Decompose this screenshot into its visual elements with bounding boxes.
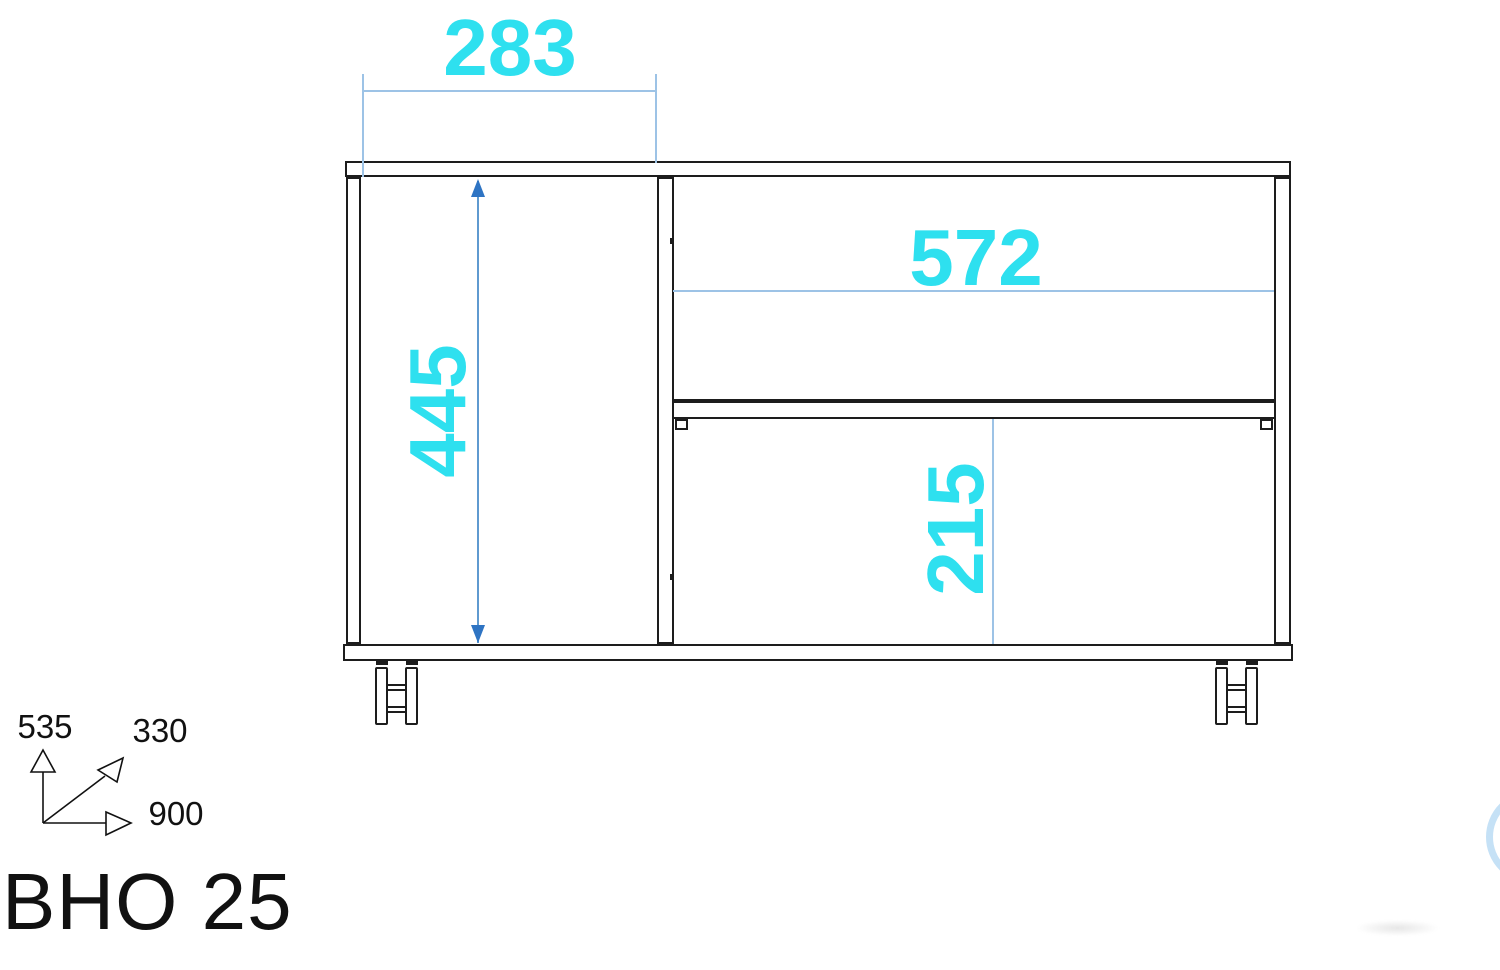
dim-top-width-ext-left — [362, 74, 364, 177]
caster-right-mount-nub-a — [1216, 660, 1228, 665]
dim-top-width-label: 283 — [415, 8, 605, 88]
dim-left-height-arrow-down — [471, 625, 485, 643]
dim-shelf-width-line — [673, 290, 1274, 292]
scan-smudge — [1355, 920, 1440, 936]
axis-width-label: 900 — [141, 797, 211, 830]
watermark-crescent — [1486, 790, 1500, 884]
caster-left-wheel-outer — [375, 667, 388, 725]
caster-right-axle-lower — [1226, 706, 1247, 713]
dim-flap-height-line — [992, 419, 994, 644]
caster-left-mount-nub-b — [406, 660, 418, 665]
caster-right-mount-nub-b — [1246, 660, 1258, 665]
caster-left-mount-nub-a — [376, 660, 388, 665]
caster-right-wheel-outer — [1215, 667, 1228, 725]
caster-right-wheel-inner — [1245, 667, 1258, 725]
divider-pin-lower — [670, 574, 674, 580]
axis-height-label: 535 — [10, 710, 80, 743]
caster-right-axle-upper — [1226, 684, 1247, 691]
dim-shelf-width-label: 572 — [881, 218, 1071, 298]
axis-up-arrowhead — [31, 750, 55, 772]
cabinet-right-side-panel — [1274, 177, 1291, 644]
cabinet-top-panel — [345, 161, 1291, 177]
dim-flap-height-label: 215 — [916, 434, 996, 624]
technical-drawing-canvas: 283 445 572 215 535 330 900 BHO 25 — [0, 0, 1500, 970]
flap-top-edge-line — [674, 417, 1274, 419]
dim-left-height-label: 445 — [398, 316, 478, 506]
axis-depth-label: 330 — [125, 714, 195, 747]
dim-top-width-line — [362, 90, 657, 92]
flap-hinge-right — [1260, 419, 1273, 430]
caster-left-wheel-inner — [405, 667, 418, 725]
cabinet-bottom-panel — [343, 644, 1293, 661]
dim-left-height-arrow-up — [471, 179, 485, 197]
dim-left-height-line — [477, 181, 479, 643]
axis-right-arrowhead — [106, 812, 131, 835]
caster-left-axle-lower — [386, 706, 407, 713]
model-title: BHO 25 — [2, 860, 293, 944]
divider-pin-upper — [670, 238, 674, 244]
shelf-edge-line — [674, 399, 1274, 403]
caster-left-axle-upper — [386, 684, 407, 691]
flap-hinge-left — [675, 419, 688, 430]
cabinet-left-side-panel — [346, 177, 361, 644]
dim-top-width-ext-right — [655, 74, 657, 163]
axis-diagonal-line — [43, 776, 105, 823]
